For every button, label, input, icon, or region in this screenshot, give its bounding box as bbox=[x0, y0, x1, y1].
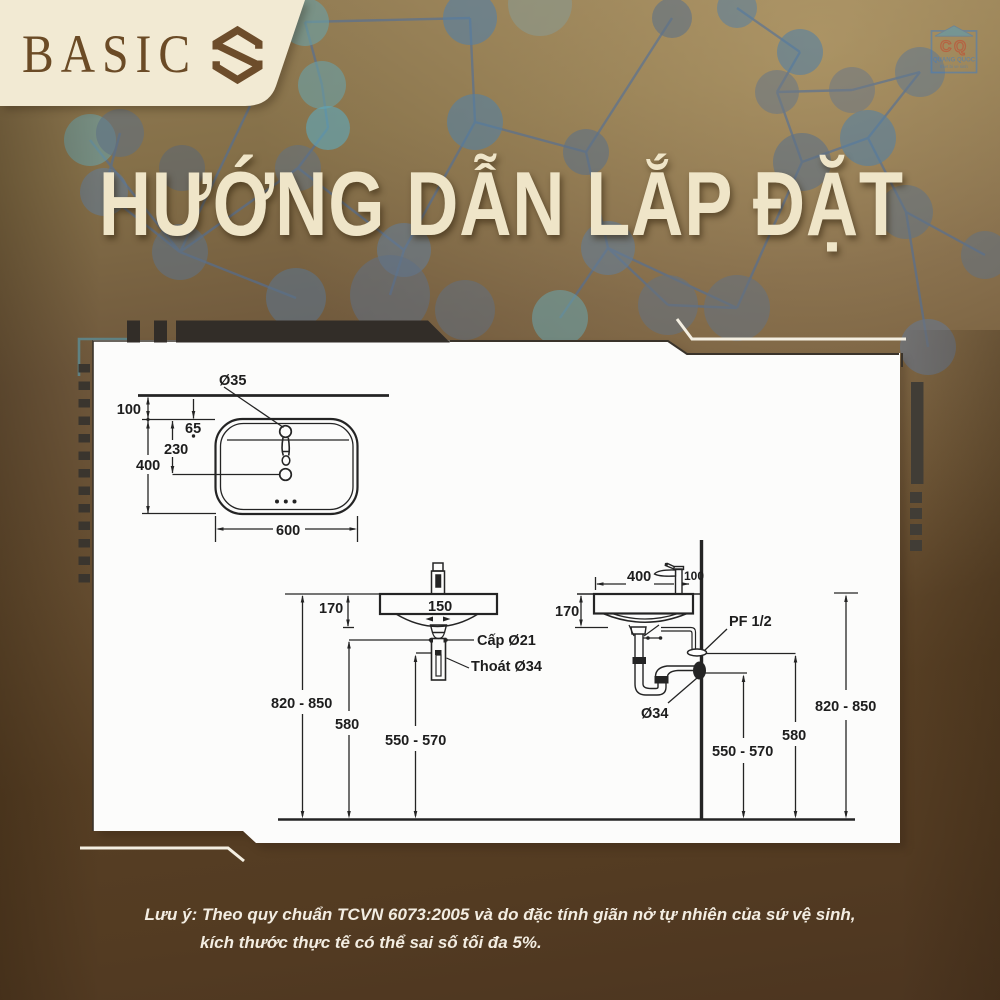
svg-text:230: 230 bbox=[164, 442, 188, 458]
svg-text:Ø34: Ø34 bbox=[641, 706, 668, 722]
svg-text:100: 100 bbox=[117, 402, 141, 418]
svg-text:820 - 850: 820 - 850 bbox=[815, 699, 876, 715]
svg-text:550 - 570: 550 - 570 bbox=[385, 733, 446, 749]
svg-text:400: 400 bbox=[627, 569, 651, 585]
svg-text:580: 580 bbox=[782, 728, 806, 744]
svg-text:170: 170 bbox=[319, 601, 343, 617]
svg-text:Thoát Ø34: Thoát Ø34 bbox=[471, 659, 542, 675]
svg-text:Ø35: Ø35 bbox=[219, 373, 246, 389]
svg-text:600: 600 bbox=[276, 523, 300, 539]
svg-text:400: 400 bbox=[136, 458, 160, 474]
svg-text:820 - 850: 820 - 850 bbox=[271, 696, 332, 712]
svg-text:65: 65 bbox=[185, 421, 201, 437]
svg-text:150: 150 bbox=[428, 599, 452, 615]
svg-text:580: 580 bbox=[335, 717, 359, 733]
svg-text:PF 1/2: PF 1/2 bbox=[729, 614, 772, 630]
svg-text:Cấp Ø21: Cấp Ø21 bbox=[477, 633, 536, 649]
svg-text:100: 100 bbox=[684, 569, 704, 583]
svg-text:550 - 570: 550 - 570 bbox=[712, 744, 773, 760]
svg-text:170: 170 bbox=[555, 604, 579, 620]
